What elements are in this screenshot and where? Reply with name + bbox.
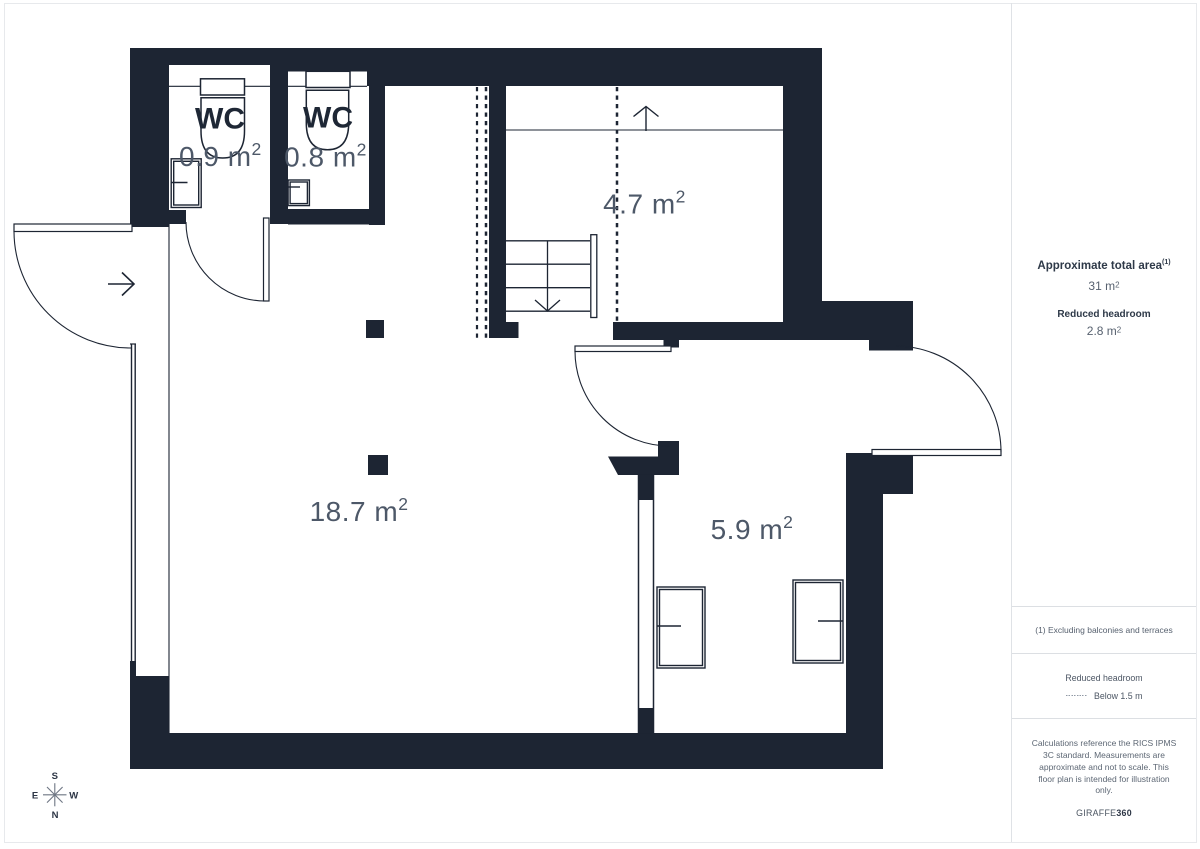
svg-text:WC: WC [195, 103, 245, 136]
svg-text:4.7 m2: 4.7 m2 [603, 186, 686, 219]
svg-text:0.8 m2: 0.8 m2 [284, 139, 367, 172]
svg-text:E: E [32, 790, 38, 801]
svg-text:WC: WC [303, 102, 353, 135]
svg-text:N: N [52, 810, 59, 821]
svg-text:S: S [52, 771, 58, 782]
svg-text:0.9 m2: 0.9 m2 [179, 139, 262, 172]
svg-text:5.9 m2: 5.9 m2 [711, 512, 794, 545]
svg-text:W: W [69, 790, 78, 801]
svg-text:18.7 m2: 18.7 m2 [310, 494, 409, 527]
